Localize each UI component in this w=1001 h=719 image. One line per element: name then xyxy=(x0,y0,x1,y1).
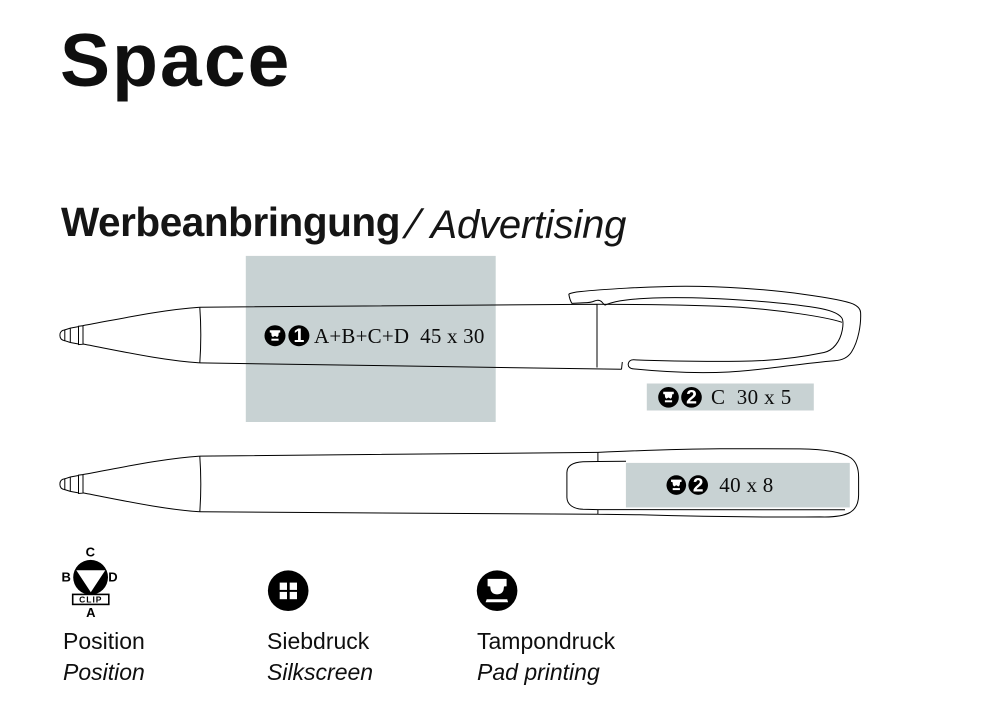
svg-text:A: A xyxy=(86,605,96,620)
svg-text:1: 1 xyxy=(293,325,304,347)
svg-text:B: B xyxy=(62,569,71,584)
svg-text:2: 2 xyxy=(686,387,697,409)
svg-text:D: D xyxy=(108,569,117,584)
svg-text:C: C xyxy=(86,545,96,560)
svg-text:CLIP: CLIP xyxy=(79,595,102,605)
svg-text:2: 2 xyxy=(693,475,704,496)
